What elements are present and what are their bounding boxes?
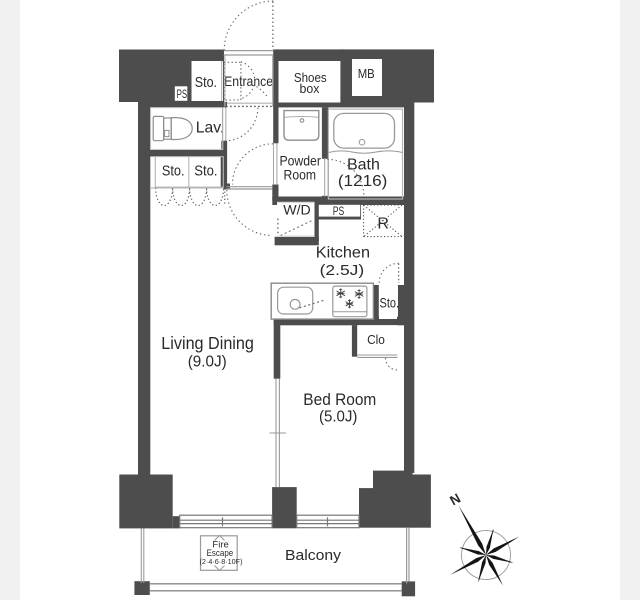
svg-text:Entrance: Entrance xyxy=(224,73,273,89)
svg-text:Sto.: Sto. xyxy=(162,163,185,180)
svg-text:PS: PS xyxy=(177,89,188,101)
svg-text:W/D: W/D xyxy=(283,203,311,218)
svg-text:(1216): (1216) xyxy=(338,173,388,190)
svg-text:Sto.: Sto. xyxy=(194,163,217,180)
svg-text:Room: Room xyxy=(284,166,317,182)
svg-text:R: R xyxy=(377,216,389,233)
svg-text:Sto.: Sto. xyxy=(380,296,400,311)
svg-text:Bed Room: Bed Room xyxy=(303,390,376,409)
svg-text:Bath: Bath xyxy=(347,156,380,173)
svg-text:box: box xyxy=(300,81,320,96)
svg-text:Sto.: Sto. xyxy=(195,75,217,91)
svg-text:PS: PS xyxy=(333,204,345,218)
svg-text:MB: MB xyxy=(358,67,375,81)
svg-text:(9.0J): (9.0J) xyxy=(188,354,227,371)
svg-text:(5.0J): (5.0J) xyxy=(319,408,358,425)
svg-text:(2.5J): (2.5J) xyxy=(320,262,365,279)
svg-text:Living Dining: Living Dining xyxy=(161,333,254,353)
svg-text:(2·4·6·8·10F): (2·4·6·8·10F) xyxy=(200,557,243,566)
svg-text:Clo: Clo xyxy=(367,332,385,347)
svg-text:Kitchen: Kitchen xyxy=(316,245,370,262)
svg-text:Lav.: Lav. xyxy=(196,120,225,137)
svg-text:Balcony: Balcony xyxy=(285,548,342,564)
